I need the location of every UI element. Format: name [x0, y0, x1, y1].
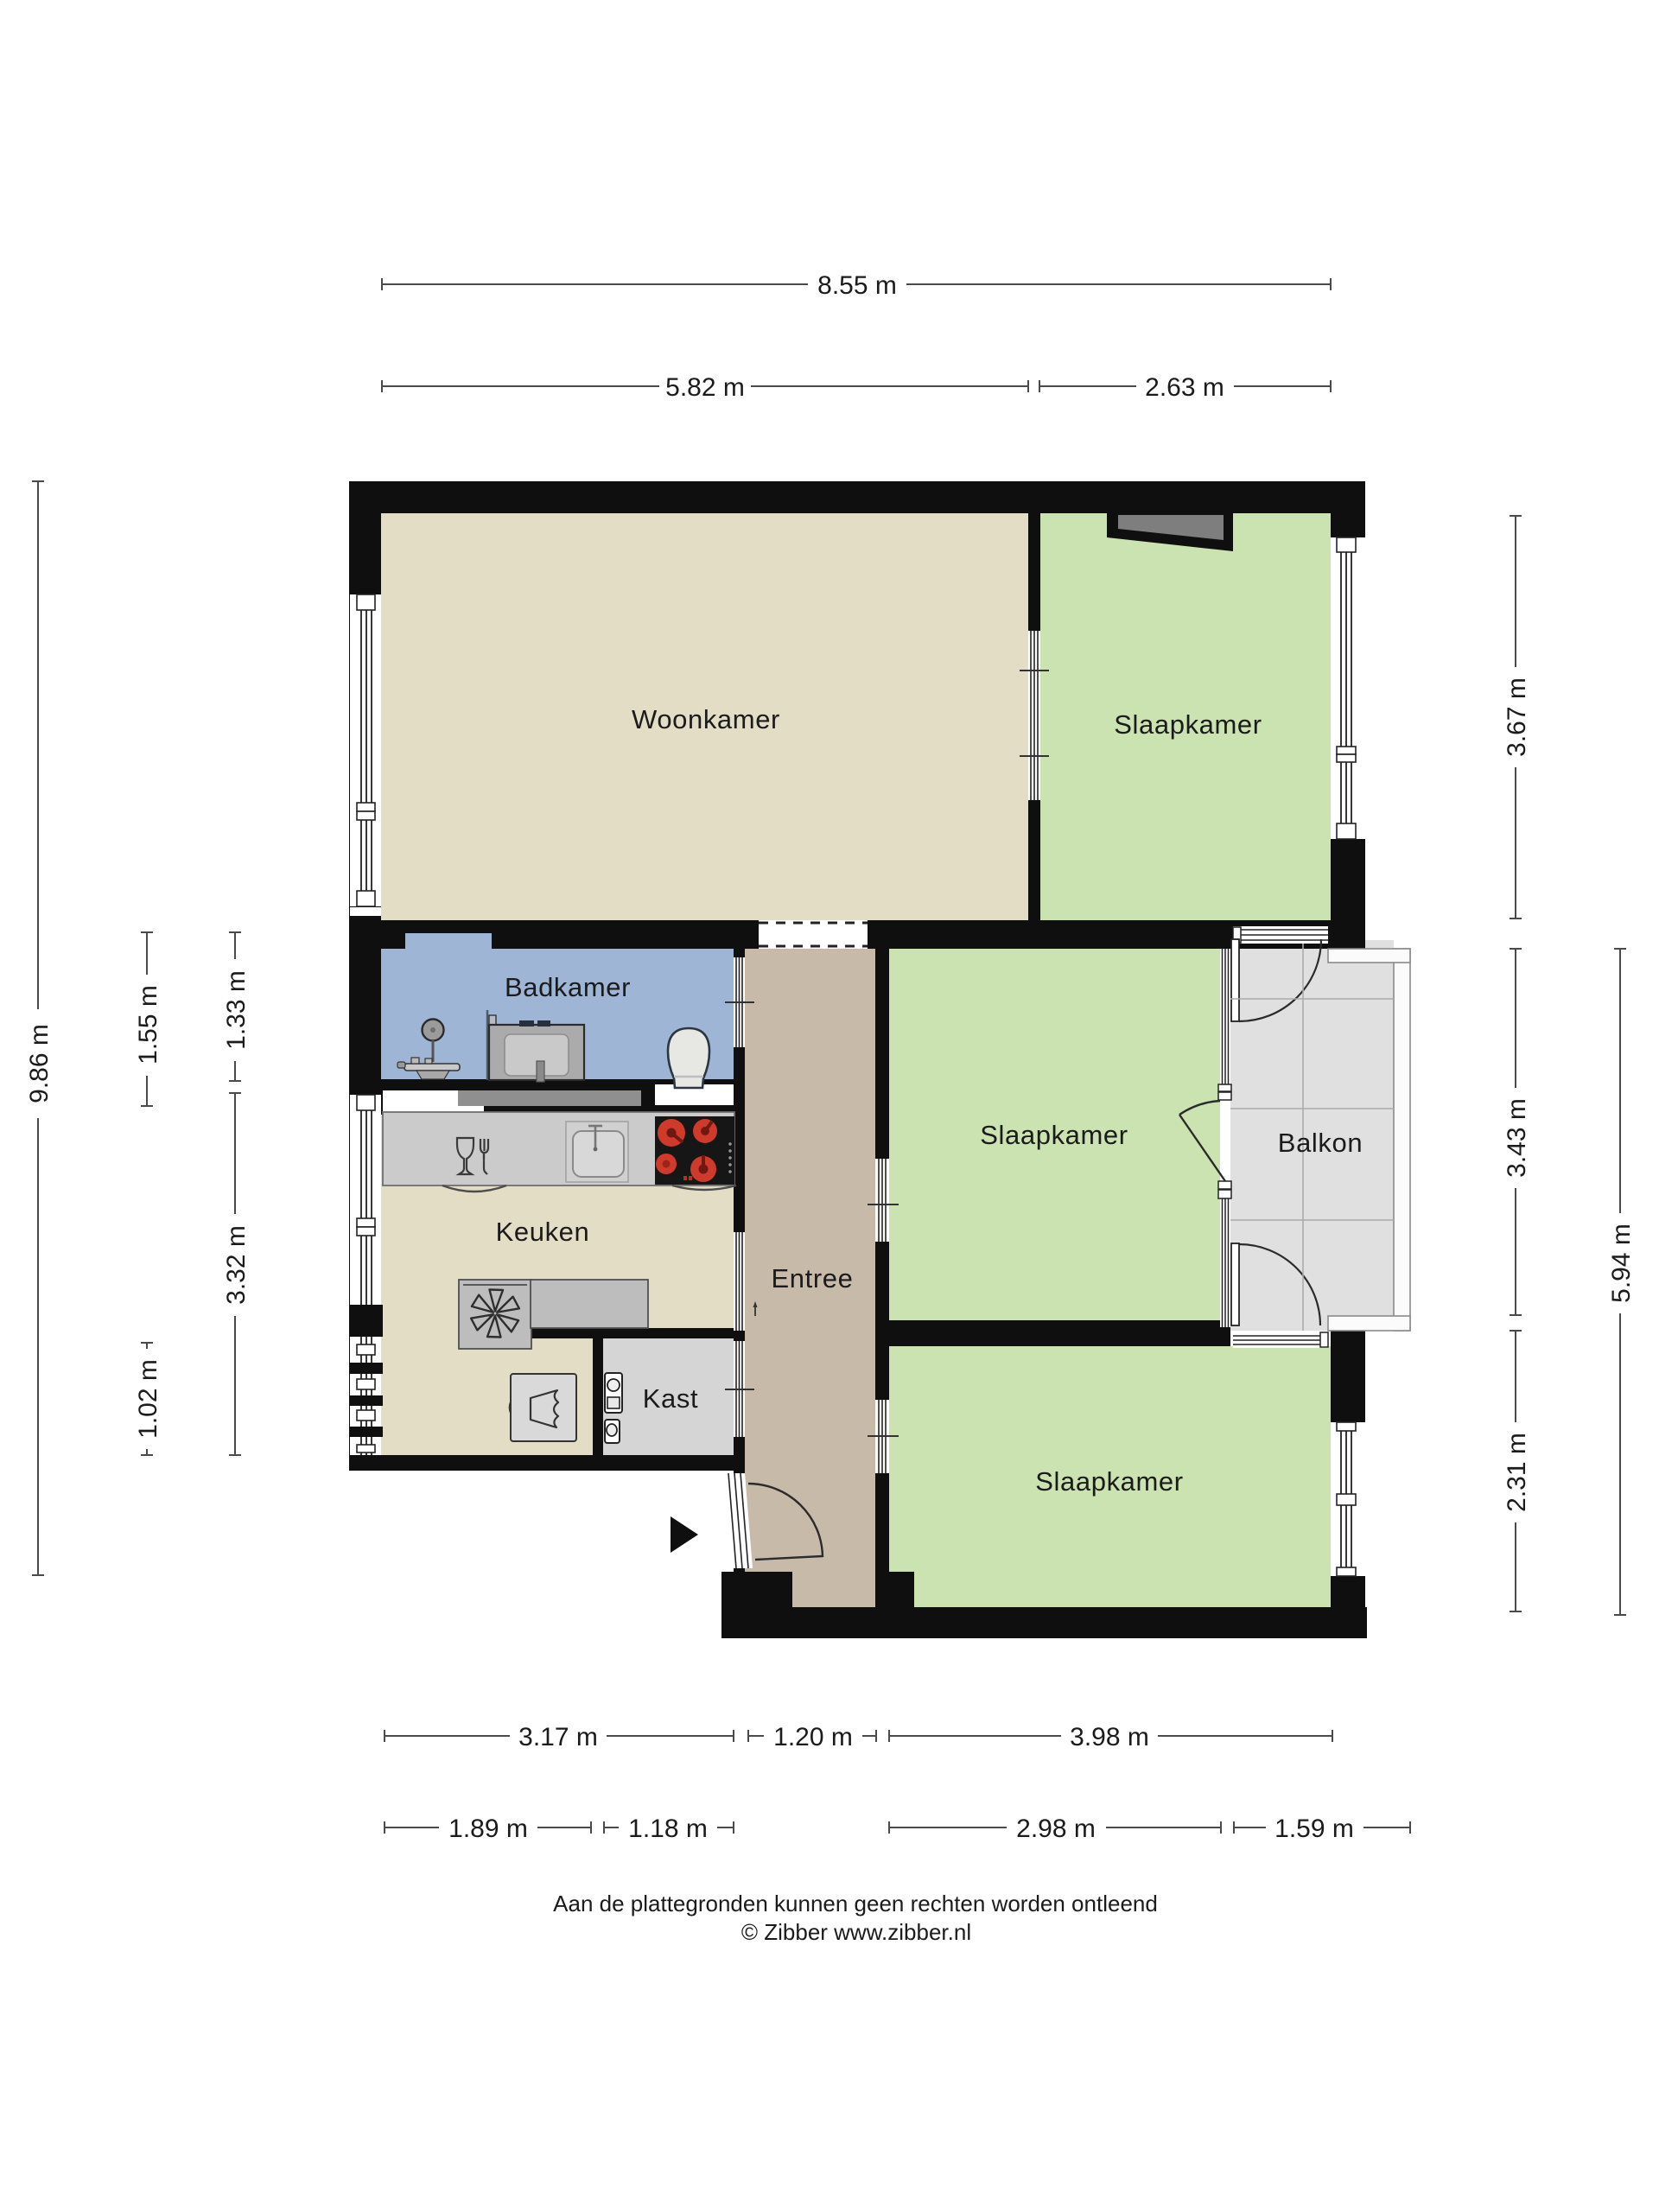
- svg-text:3.43 m: 3.43 m: [1503, 1098, 1531, 1178]
- svg-text:Kast: Kast: [643, 1383, 698, 1414]
- svg-text:Badkamer: Badkamer: [505, 972, 631, 1002]
- svg-text:1.20 m: 1.20 m: [773, 1723, 853, 1751]
- svg-text:Slaapkamer: Slaapkamer: [1035, 1466, 1183, 1497]
- svg-text:2.98 m: 2.98 m: [1016, 1815, 1096, 1843]
- svg-text:1.59 m: 1.59 m: [1274, 1815, 1354, 1843]
- svg-text:2.63 m: 2.63 m: [1145, 373, 1224, 402]
- svg-text:3.32 m: 3.32 m: [222, 1225, 251, 1305]
- svg-text:© Zibber www.zibber.nl: © Zibber www.zibber.nl: [741, 1919, 971, 1945]
- svg-text:1.55 m: 1.55 m: [134, 985, 162, 1065]
- svg-text:Keuken: Keuken: [496, 1217, 590, 1247]
- svg-text:Aan de plattegronden kunnen ge: Aan de plattegronden kunnen geen rechten…: [553, 1891, 1158, 1916]
- svg-text:Slaapkamer: Slaapkamer: [980, 1120, 1128, 1150]
- svg-text:5.82 m: 5.82 m: [665, 373, 745, 402]
- svg-text:9.86 m: 9.86 m: [25, 1024, 54, 1103]
- svg-text:Woonkamer: Woonkamer: [632, 704, 780, 734]
- svg-text:3.67 m: 3.67 m: [1503, 677, 1531, 757]
- svg-text:Slaapkamer: Slaapkamer: [1114, 709, 1262, 740]
- svg-text:gorenje: gorenje: [662, 1177, 682, 1183]
- svg-text:1.33 m: 1.33 m: [222, 970, 251, 1050]
- svg-text:1.18 m: 1.18 m: [628, 1815, 708, 1843]
- svg-text:1.02 m: 1.02 m: [134, 1359, 162, 1439]
- svg-text:2.31 m: 2.31 m: [1503, 1433, 1531, 1512]
- svg-text:8.55 m: 8.55 m: [817, 271, 897, 300]
- svg-text:5.94 m: 5.94 m: [1607, 1224, 1636, 1303]
- svg-text:3.17 m: 3.17 m: [518, 1723, 598, 1751]
- svg-text:1.89 m: 1.89 m: [448, 1815, 528, 1843]
- svg-text:3.98 m: 3.98 m: [1070, 1723, 1149, 1751]
- svg-text:Balkon: Balkon: [1278, 1128, 1363, 1158]
- svg-text:Entree: Entree: [772, 1263, 854, 1294]
